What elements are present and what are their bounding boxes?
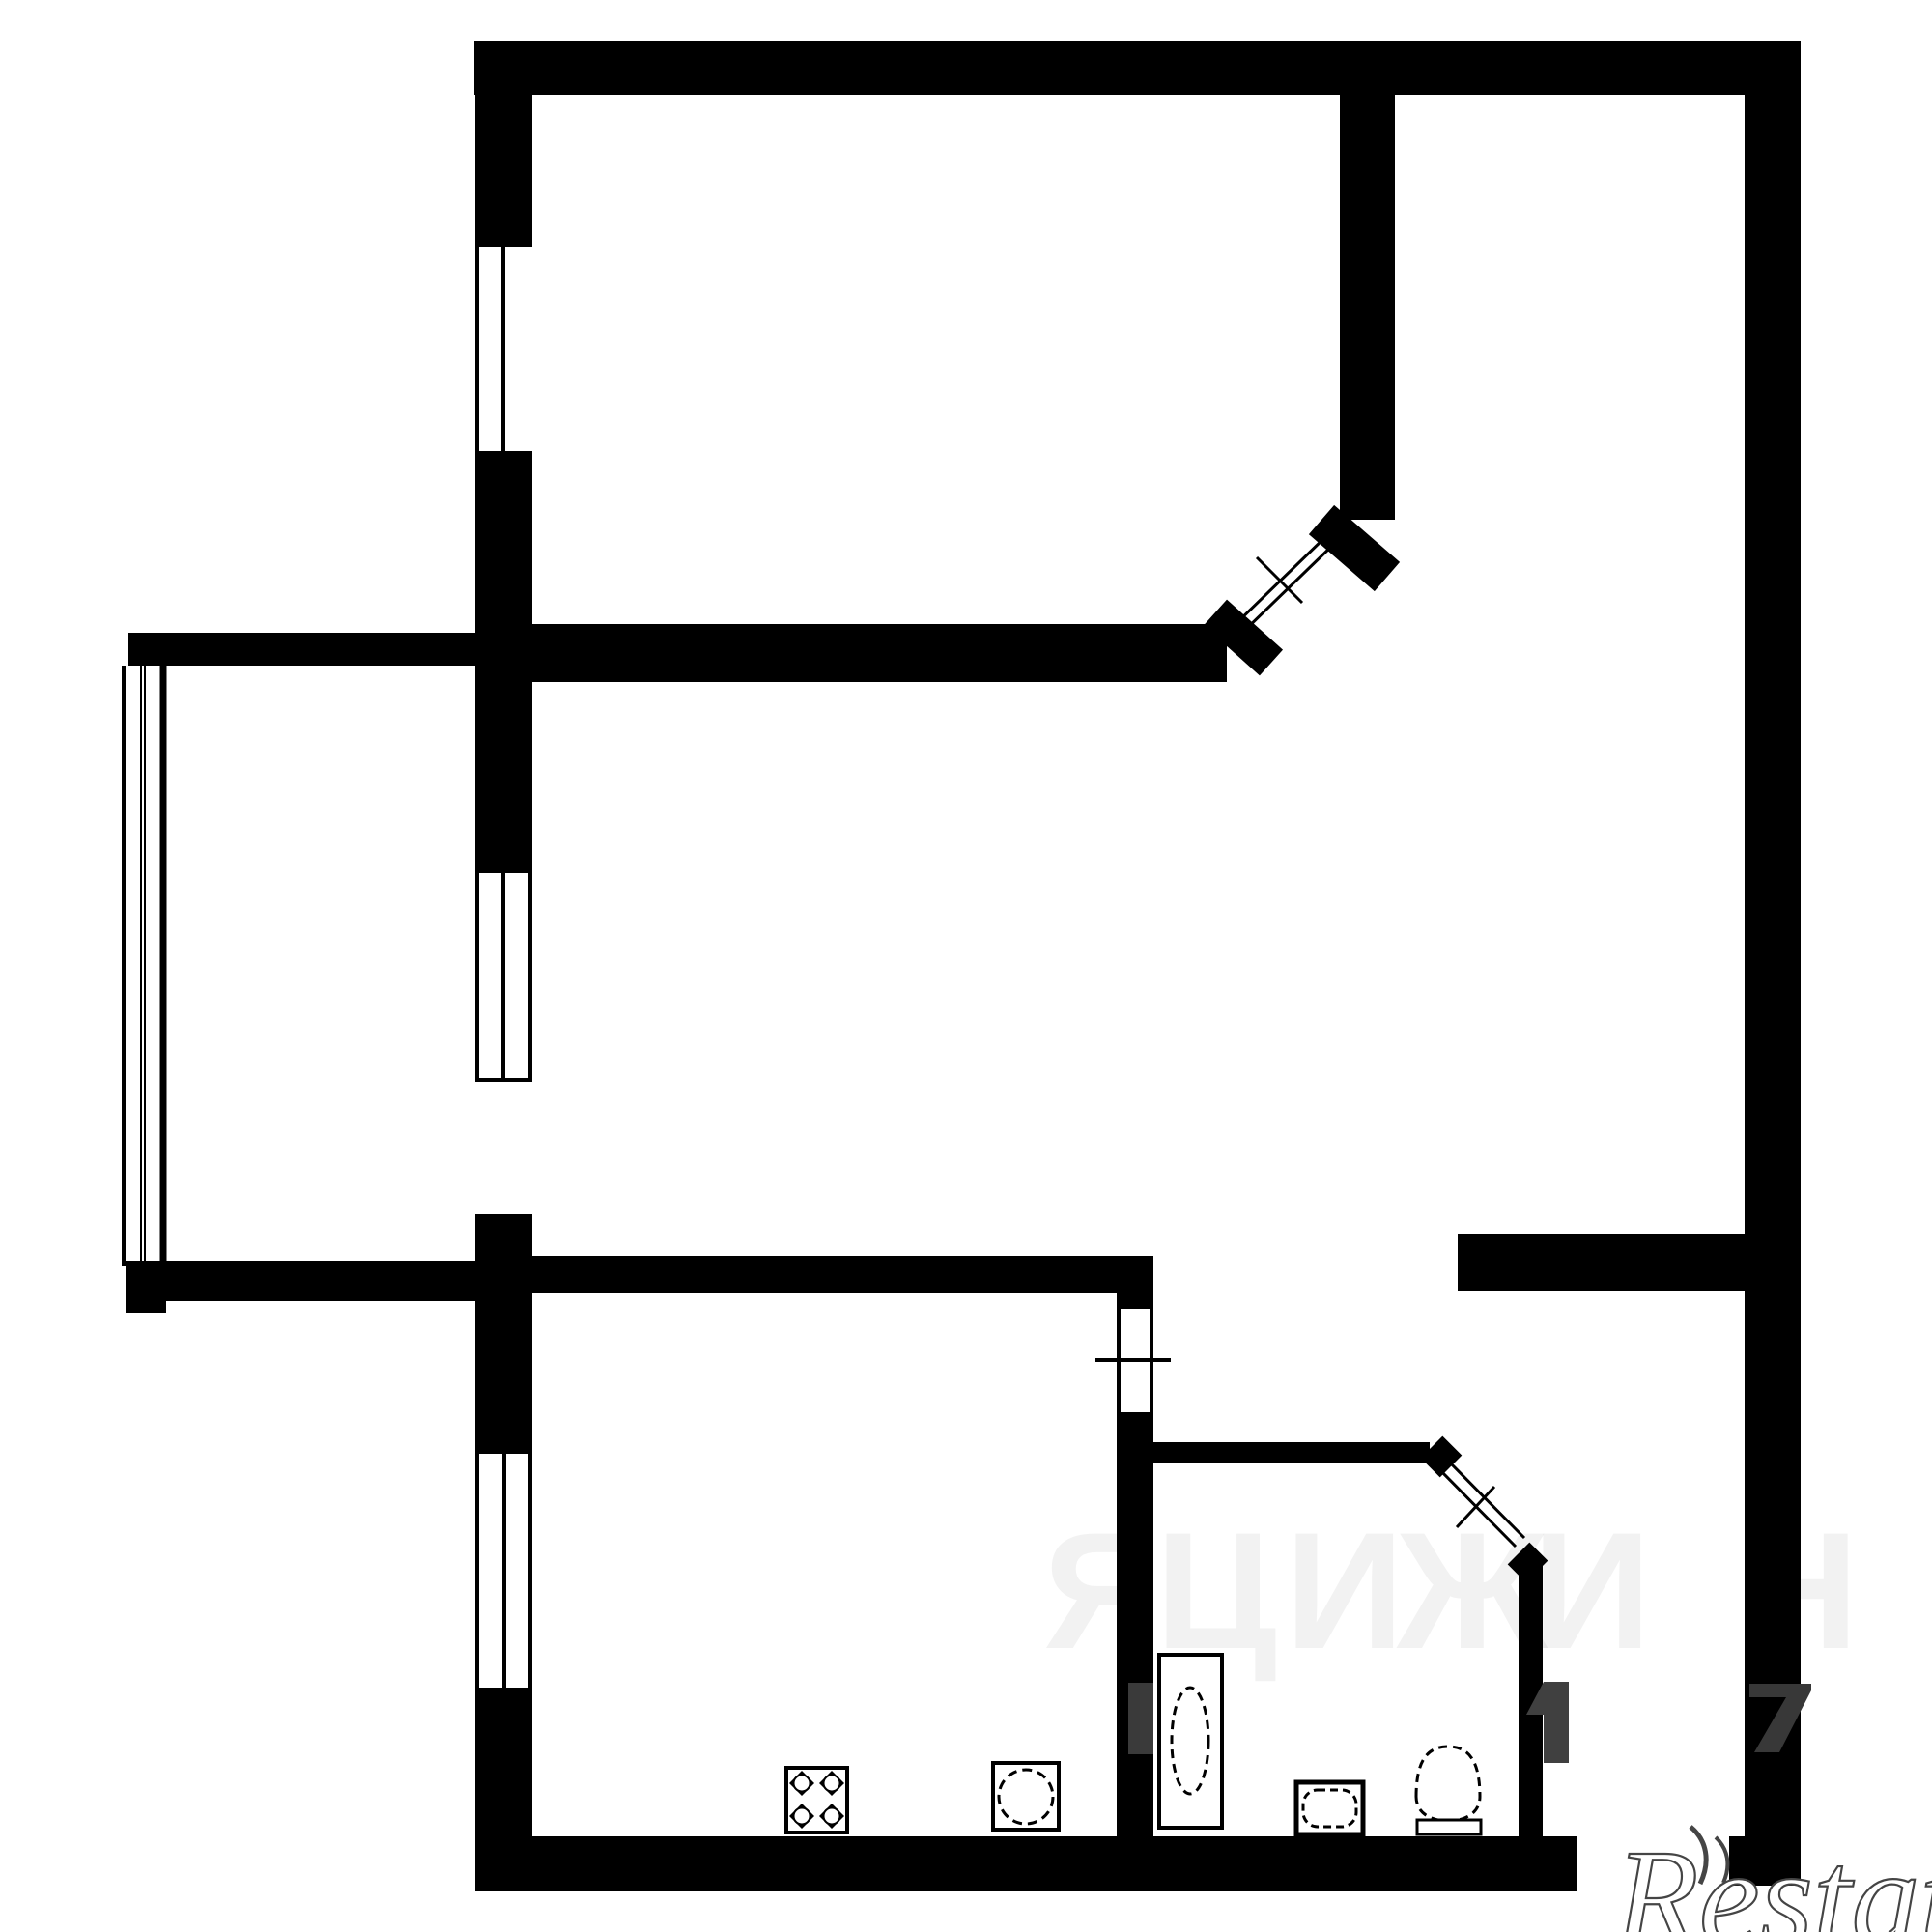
- svg-text:И: И: [1285, 1498, 1405, 1684]
- svg-text:И: И: [1532, 1498, 1652, 1684]
- svg-text:Restate: Restate: [1614, 1821, 1932, 1932]
